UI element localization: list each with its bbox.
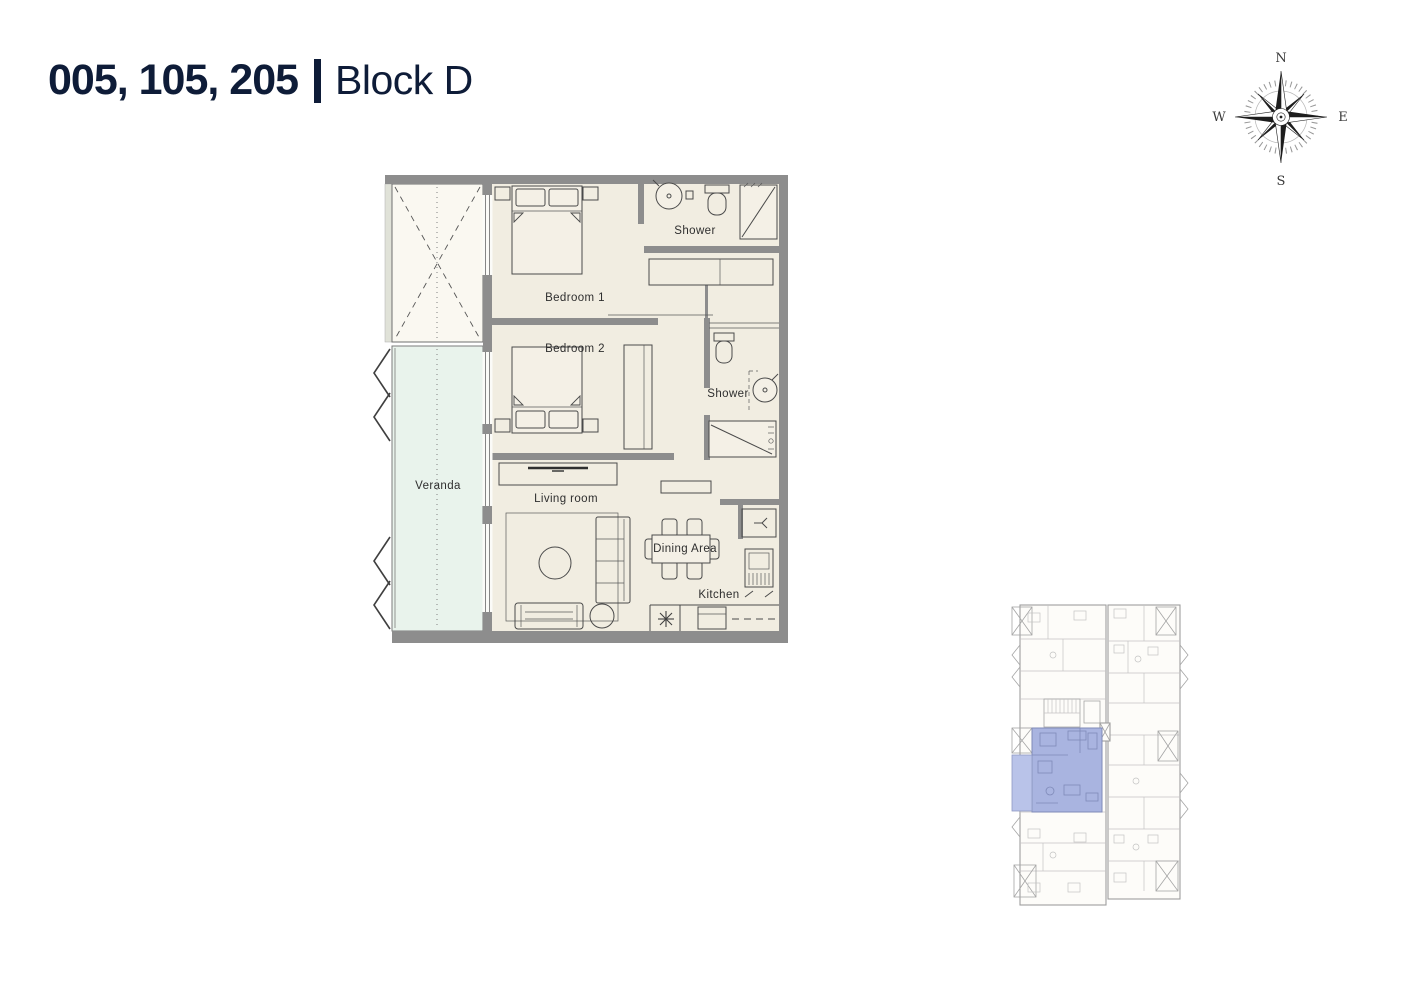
floorplan-sheet: { "header": { "unit_numbers": "005, 105,…: [0, 0, 1401, 990]
bedroom2-label: Bedroom 2: [545, 343, 605, 355]
unit-numbers: 005, 105, 205: [48, 56, 298, 105]
title-separator-bar: [314, 59, 321, 103]
compass-hub: [1273, 109, 1290, 126]
living-room-label: Living room: [534, 493, 598, 505]
kitchen-label: Kitchen: [698, 589, 739, 601]
dining-area-label: Dining Area: [653, 543, 717, 555]
compass-rose-icon: N E S W: [1206, 44, 1356, 194]
main-floor-plan: Shower Bedroom 1 Bedroom 2 Shower Verand…: [368, 175, 792, 645]
compass-south-label: S: [1277, 174, 1286, 189]
compass-east-label: E: [1338, 110, 1348, 125]
compass-north-label: N: [1275, 51, 1286, 66]
window-icon: [483, 195, 493, 612]
side-strip: [385, 184, 392, 342]
page-title: 005, 105, 205 Block D: [48, 56, 473, 105]
building-key-plan: [1008, 603, 1193, 908]
block-name: Block D: [335, 57, 473, 104]
veranda-label: Veranda: [415, 480, 461, 492]
highlighted-unit-veranda: [1012, 755, 1032, 811]
shower2-label: Shower: [707, 388, 748, 400]
shutter-zigzag-icon: [374, 349, 390, 629]
shower1-label: Shower: [674, 225, 715, 237]
highlighted-unit: [1032, 728, 1102, 812]
compass-west-label: W: [1212, 110, 1226, 125]
bedroom1-label: Bedroom 1: [545, 292, 605, 304]
